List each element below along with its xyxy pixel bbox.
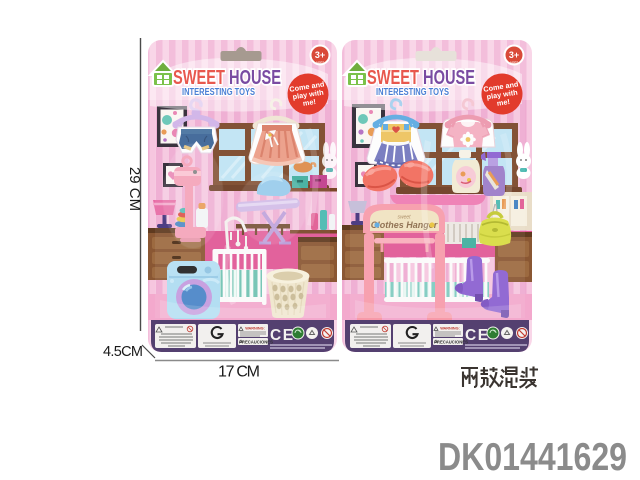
svg-text:WARNING:: WARNING: (245, 327, 265, 331)
svg-text:3+: 3+ (509, 50, 519, 60)
svg-text:AGES: AGES (316, 61, 325, 65)
svg-text:17 CM: 17 CM (218, 364, 260, 381)
svg-text:DK01441629: DK01441629 (438, 436, 627, 479)
svg-text:CE: CE (270, 327, 295, 344)
svg-text:PRECAUCIONES: PRECAUCIONES (434, 340, 468, 345)
svg-text:SWEET HOUSE: SWEET HOUSE (173, 67, 281, 89)
svg-text:4.5CM: 4.5CM (103, 344, 143, 360)
svg-text:WARNING:: WARNING: (440, 327, 460, 331)
svg-text:INTERESTING TOYS: INTERESTING TOYS (376, 87, 449, 98)
svg-text:PRECAUCIONES: PRECAUCIONES (239, 340, 273, 345)
svg-text:INTERESTING TOYS: INTERESTING TOYS (182, 87, 255, 98)
svg-text:CE: CE (465, 327, 490, 344)
svg-text:3+: 3+ (315, 50, 325, 60)
svg-text:29 CM: 29 CM (126, 167, 143, 211)
svg-text:SWEET HOUSE: SWEET HOUSE (367, 67, 475, 89)
svg-text:AGES: AGES (510, 61, 519, 65)
